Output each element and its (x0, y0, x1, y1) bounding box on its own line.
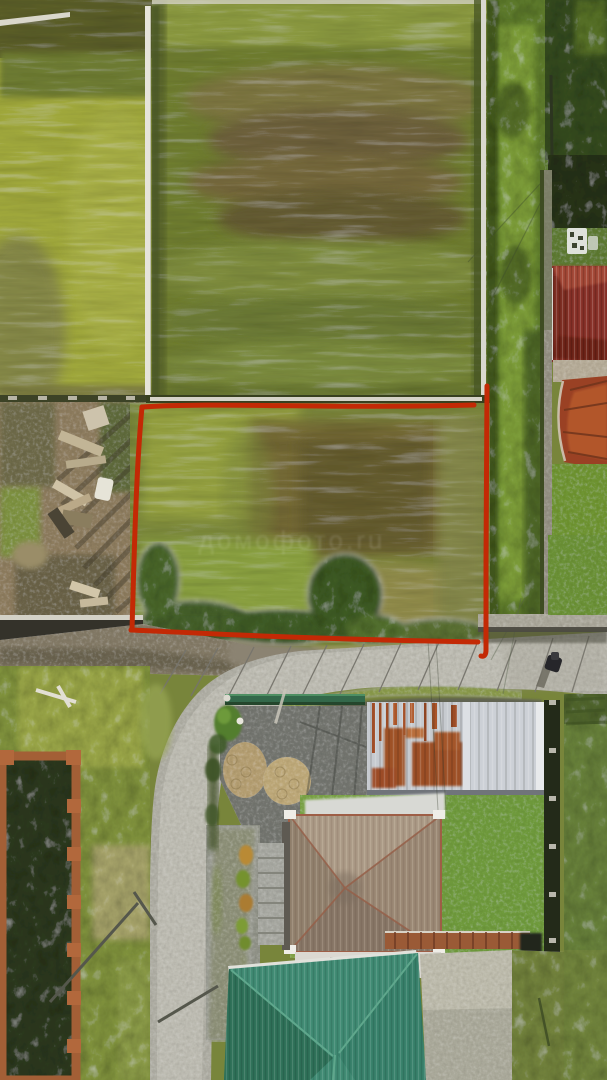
svg-text:домофото.ru: домофото.ru (199, 525, 386, 555)
